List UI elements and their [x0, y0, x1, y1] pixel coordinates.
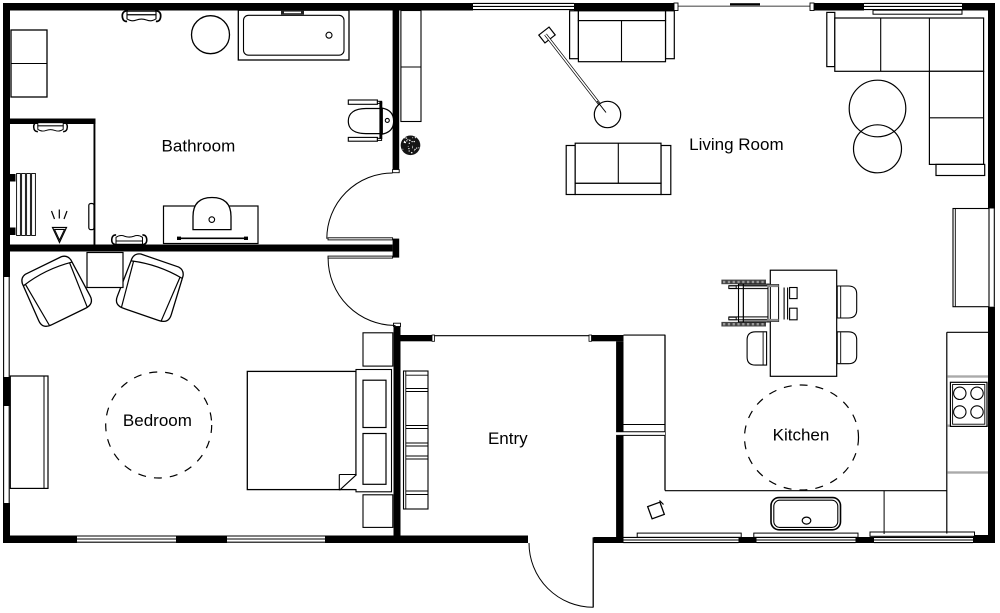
svg-text:Entry: Entry — [488, 429, 528, 448]
svg-text:Bathroom: Bathroom — [162, 136, 236, 155]
svg-text:Living Room: Living Room — [689, 135, 784, 154]
svg-text:Kitchen: Kitchen — [773, 426, 830, 445]
svg-text:Bedroom: Bedroom — [123, 411, 192, 430]
